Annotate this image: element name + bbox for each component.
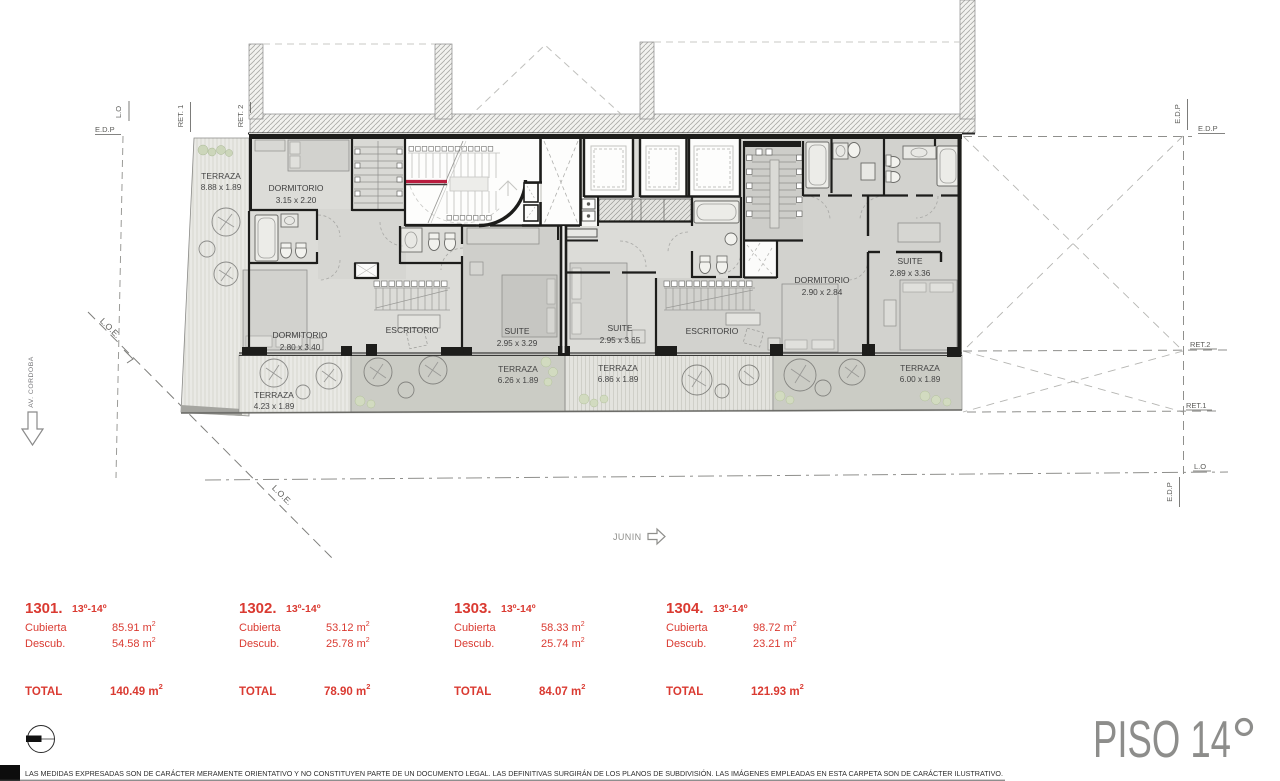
svg-text:DORMITORIO: DORMITORIO [272, 330, 327, 340]
svg-text:ESCRITORIO: ESCRITORIO [386, 325, 439, 335]
svg-text:Descub.: Descub. [666, 638, 706, 650]
svg-text:RET. 2: RET. 2 [236, 105, 245, 128]
svg-text:4.23 x 1.89: 4.23 x 1.89 [254, 402, 295, 411]
svg-text:TOTAL: TOTAL [454, 686, 491, 698]
svg-text:23.21 m2: 23.21 m2 [753, 637, 797, 650]
svg-text:SUITE: SUITE [897, 256, 922, 266]
svg-text:6.86 x 1.89: 6.86 x 1.89 [598, 375, 639, 384]
svg-text:E.D.P: E.D.P [95, 125, 115, 134]
svg-text:Descub.: Descub. [239, 638, 279, 650]
svg-text:RET.2: RET.2 [1190, 340, 1210, 349]
svg-text:TOTAL: TOTAL [25, 686, 62, 698]
svg-text:DORMITORIO: DORMITORIO [268, 183, 323, 193]
svg-text:8.88 x 1.89: 8.88 x 1.89 [201, 183, 242, 192]
svg-text:Cubierta: Cubierta [454, 622, 496, 634]
svg-text:98.72 m2: 98.72 m2 [753, 621, 797, 634]
svg-text:ESCRITORIO: ESCRITORIO [686, 326, 739, 336]
svg-text:2.90 x 2.84: 2.90 x 2.84 [802, 288, 843, 297]
svg-text:1302.: 1302. [239, 600, 277, 617]
svg-text:58.33 m2: 58.33 m2 [541, 621, 585, 634]
svg-text:13º-14º: 13º-14º [286, 603, 321, 615]
svg-text:PISO 14: PISO 14 [1093, 711, 1231, 769]
svg-text:3.15 x 2.20: 3.15 x 2.20 [276, 196, 317, 205]
svg-text:Cubierta: Cubierta [666, 622, 708, 634]
svg-text:2.95 x 3.65: 2.95 x 3.65 [600, 336, 641, 345]
svg-text:E.D.P: E.D.P [1165, 482, 1174, 502]
svg-text:Cubierta: Cubierta [239, 622, 281, 634]
svg-text:AV. CORDOBA: AV. CORDOBA [28, 356, 35, 408]
svg-text:85.91 m2: 85.91 m2 [112, 621, 156, 634]
svg-text:TERRAZA: TERRAZA [201, 171, 241, 181]
svg-text:Cubierta: Cubierta [25, 622, 67, 634]
svg-text:TERRAZA: TERRAZA [498, 364, 538, 374]
svg-text:13º-14º: 13º-14º [72, 603, 107, 615]
svg-text:Descub.: Descub. [454, 638, 494, 650]
svg-text:L.O: L.O [1194, 462, 1206, 471]
svg-text:2.89 x 3.36: 2.89 x 3.36 [890, 269, 931, 278]
svg-text:54.58 m2: 54.58 m2 [112, 637, 156, 650]
svg-text:13º-14º: 13º-14º [501, 603, 536, 615]
svg-text:TERRAZA: TERRAZA [254, 390, 294, 400]
svg-text:TOTAL: TOTAL [666, 686, 703, 698]
svg-text:25.74 m2: 25.74 m2 [541, 637, 585, 650]
svg-text:1304.: 1304. [666, 600, 704, 617]
svg-text:JUNIN: JUNIN [613, 532, 642, 542]
svg-text:DORMITORIO: DORMITORIO [794, 275, 849, 285]
svg-text:L.O: L.O [114, 106, 123, 118]
svg-text:TOTAL: TOTAL [239, 686, 276, 698]
svg-text:E.D.P: E.D.P [1173, 104, 1182, 124]
svg-text:6.26 x 1.89: 6.26 x 1.89 [498, 376, 539, 385]
svg-text:Descub.: Descub. [25, 638, 65, 650]
svg-text:53.12 m2: 53.12 m2 [326, 621, 370, 634]
svg-text:TERRAZA: TERRAZA [598, 363, 638, 373]
svg-text:25.78 m2: 25.78 m2 [326, 637, 370, 650]
svg-text:RET.1: RET.1 [1186, 401, 1206, 410]
svg-text:TERRAZA: TERRAZA [900, 363, 940, 373]
svg-text:1301.: 1301. [25, 600, 63, 617]
svg-text:SUITE: SUITE [607, 323, 632, 333]
svg-text:2.95 x 3.29: 2.95 x 3.29 [497, 339, 538, 348]
svg-text:6.00 x 1.89: 6.00 x 1.89 [900, 375, 941, 384]
svg-text:1303.: 1303. [454, 600, 492, 617]
svg-text:13º-14º: 13º-14º [713, 603, 748, 615]
svg-text:2.80 x 3.40: 2.80 x 3.40 [280, 343, 321, 352]
svg-text:LAS MEDIDAS EXPRESADAS SON DE: LAS MEDIDAS EXPRESADAS SON DE CARÁCTER M… [25, 769, 1003, 778]
svg-text:SUITE: SUITE [504, 326, 529, 336]
svg-text:E.D.P: E.D.P [1198, 124, 1218, 133]
svg-text:RET. 1: RET. 1 [176, 105, 185, 128]
